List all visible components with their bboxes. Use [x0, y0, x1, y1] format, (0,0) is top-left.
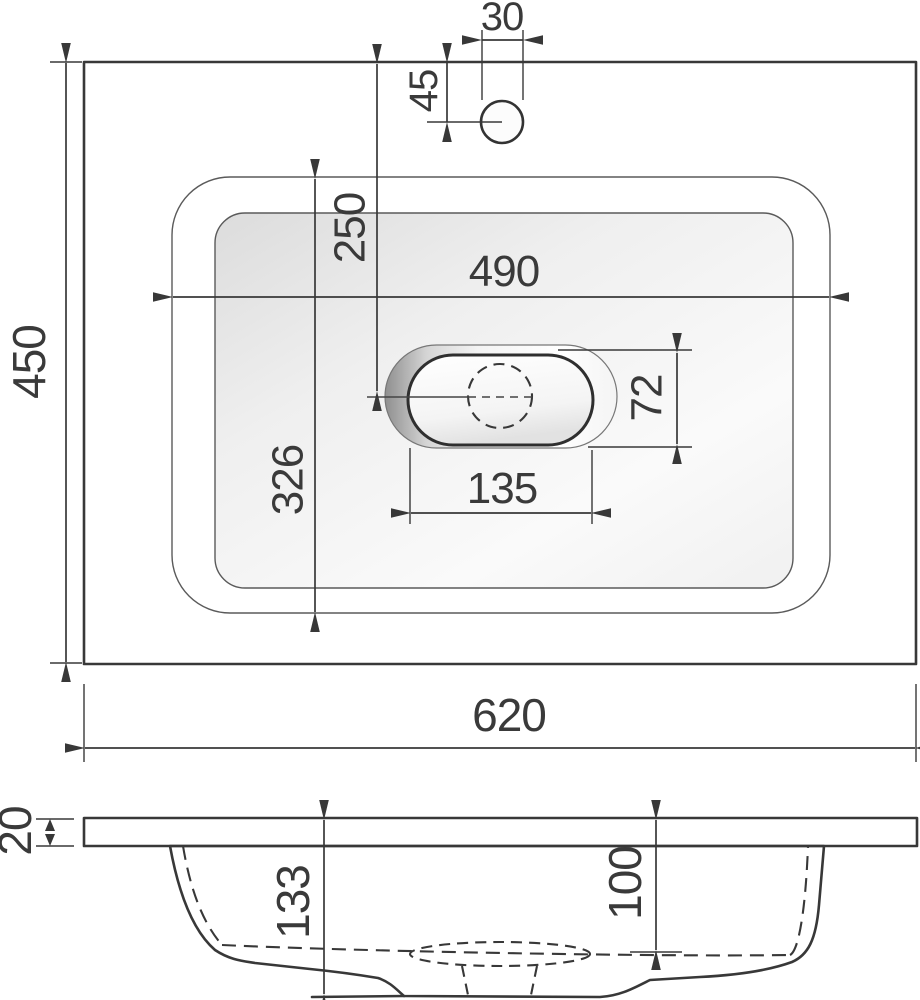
dimension-label: 30 [481, 0, 524, 39]
dimension-slab-thickness: 20 [0, 806, 74, 855]
section-drain-funnel-left [462, 966, 468, 995]
section-hidden-inner-wall-right [790, 846, 808, 955]
drawing-canvas: 30 45 450 250 490 326 [0, 0, 920, 1000]
dimension-faucet-hole-diameter: 30 [481, 0, 524, 100]
dimension-overall-width: 620 [84, 684, 916, 762]
dimension-label: 72 [623, 375, 672, 422]
section-hidden-inner-bottom [222, 945, 790, 955]
section-countertop-slab [84, 818, 917, 846]
dimension-label: 133 [267, 865, 319, 939]
section-drain-funnel-right [531, 966, 537, 995]
dimension-label: 135 [467, 464, 537, 513]
dimension-label: 450 [3, 325, 55, 399]
dimension-label: 490 [469, 247, 539, 296]
dimension-bowl-inner-depth: 100 [599, 820, 682, 952]
section-view: 20 133 100 [0, 806, 917, 997]
section-hidden-inner-wall-left [183, 846, 222, 945]
section-bowl-base-line [312, 996, 404, 997]
dimension-label: 620 [472, 689, 546, 741]
drain-recess-inner [408, 355, 593, 445]
dimension-label: 326 [264, 445, 313, 515]
dimension-label: 250 [326, 193, 375, 263]
dimension-label: 20 [0, 806, 41, 855]
dimension-label: 45 [402, 70, 446, 113]
washbasin-dimension-drawing: 30 45 450 250 490 326 [0, 0, 920, 1000]
dimension-label: 100 [599, 846, 651, 920]
top-view: 30 45 450 250 490 326 [3, 0, 916, 762]
dimension-overall-depth: 450 [3, 62, 82, 663]
